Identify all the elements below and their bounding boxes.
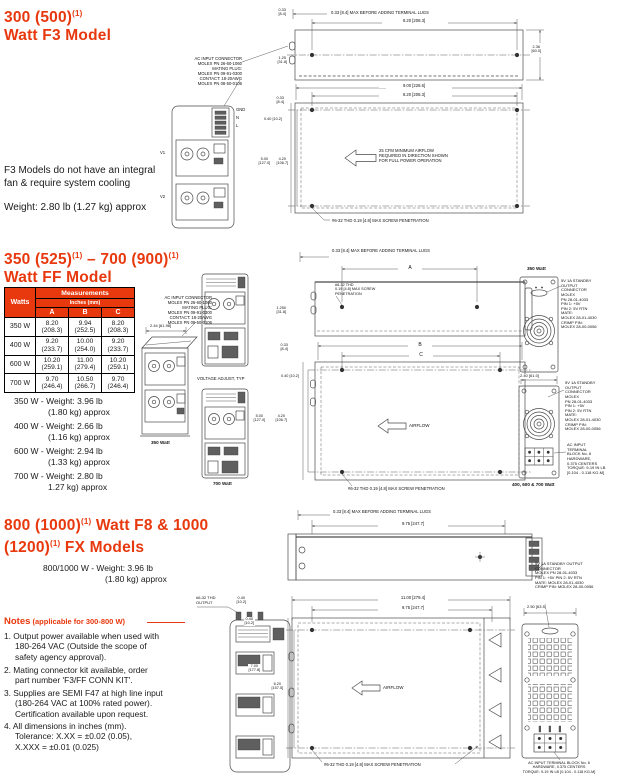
fx-dim-040a: 0.40 [10.2] [236,596,247,605]
ff-ac-connector-note: AC INPUT CONNECTOR MOLEX PN 26-60-1060 M… [140,295,212,325]
ff-fan1-label: 350 Watt [527,266,546,271]
ff-airflow-label: AIRFLOW [409,423,430,428]
col-header-c: C [102,308,135,318]
ff-dim-terminal-lugs: 0.33 [8.4] MAX BEFORE ADDING TERMINAL LU… [332,248,430,253]
col-header-units: Inches (mm) [36,299,135,308]
f3-output1-label: V1 [160,150,165,155]
ff-dim-040: 0.40 [10.2] [281,374,299,378]
fx-dim-1100: 11.00 [279.4] [378,595,448,600]
ff-fan-panel-400-700 [519,376,566,478]
cell-c: 9.70 (246.4) [102,374,135,393]
ff-standby-note-1: 5V 1A STANDBY OUTPUT CONNECTOR MOLEX PN … [561,279,623,330]
f3-dim-820-top: 8.20 [208.3] [384,18,444,23]
notes-rule [147,622,185,623]
table-row: 350 W 8.20 (208.3) 9.94 (252.5) 8.20 (20… [5,318,135,337]
cell-b: 10.00 (254.0) [69,336,102,355]
f3-dim-040: 0.40 [10.2] [264,117,282,121]
ff-title-line2: Watt FF Model [4,269,179,287]
ff-standby-note-2: 5V 1A STANDBY OUTPUT CONNECTOR MOLEX PN … [565,381,624,432]
fx-title-part3: (1200) [4,539,50,556]
ff-fan-panel-350 [520,277,561,372]
ff-dim-420: 4.20 [106.7] [275,414,288,423]
cell-c: 9.20 (233.7) [102,336,135,355]
ff-dim-b: B [410,342,430,348]
f3-ac-connector-note: AC INPUT CONNECTOR MOLEX PN 26-60-1060 M… [158,56,242,86]
note-item-3: 3. Supplies are SEMI F47 at high line in… [4,688,201,719]
note-item-4: 4. All dimensions in inches (mm). Tolera… [4,721,201,752]
f3-dim-900: 9.00 [228.6] [379,83,449,88]
fx-title-line1: 800 (1000)(1) Watt F8 & 1000 [4,513,208,535]
fx-screw-note: #6-32 THD 0.19 [4.8] MAX SCREW PENETRATI… [324,762,421,767]
fx-title-part1: 800 (1000) [4,517,81,534]
f3-weight: Weight: 2.80 lb (1.27 kg) approx [4,201,146,214]
f3-dim-236: 2.36 [60.0] [531,45,542,54]
col-header-a: A [36,308,69,318]
weight-600w: 600 W - Weight: 2.94 lb (1.33 kg) approx [14,446,110,468]
f3-title-line2: Watt F3 Model [4,27,111,45]
cell-b: 10.50 (266.7) [69,374,102,393]
ff-dim-1250: 1.250 [31.8] [276,306,287,315]
ff-350w-label: 350 Watt [151,440,170,445]
ff-dim-c: C [411,352,431,358]
measurements-table: Watts Measurements Inches (mm) A B C 350… [4,287,135,393]
fx-title-part4: FX Models [60,539,144,556]
row-watts: 400 W [5,336,36,355]
ff-title-line1: 350 (525)(1) – 700 (900)(1) [4,247,179,269]
row-watts: 700 W [5,374,36,393]
notes-heading: Notes (applicable for 300-800 W) [4,616,125,627]
ff-mid-front-view-2 [202,389,248,478]
ff-ac-input-terminal-note: AC INPUT TERMINAL BLOCK No. 6 HARDWARE, … [567,443,624,475]
row-watts: 350 W [5,318,36,337]
cell-b: 9.94 (252.5) [69,318,102,337]
ff-fan2-label: 400, 600 & 700 Watt [512,482,554,487]
fx-airflow-label: AIRFLOW [383,685,404,690]
fx-dim-975-bottom: 9.75 [247.7] [378,605,448,610]
col-header-b: B [69,308,102,318]
ff-350-front-view [140,322,197,436]
ff-dim-500: 5.00 [127.0] [253,414,266,423]
fx-dim-975-top: 9.75 [247.7] [378,521,448,526]
fx-weight: 800/1000 W - Weight: 3.96 lb (1.80 kg) a… [43,563,167,585]
fx-dim-250: 2.50 [63.5] [527,605,546,610]
datasheet-page: 300 (500)(1) Watt F3 Model AC INPUT CONN… [0,0,624,781]
cell-a: 10.20 (259.1) [36,355,69,374]
f3-dim-125: 1.25 [31.8] [277,56,288,65]
f3-dim-500: 5.00 [127.0] [258,157,271,166]
weight-400w: 400 W - Weight: 2.66 lb (1.16 kg) approx [14,421,110,443]
note-item-1: 1. Output power available when used with… [4,631,201,662]
weight-350w: 350 W - Weight: 3.96 lb (1.80 kg) approx [14,396,110,418]
ff-title-part1: 350 (525) [4,251,72,268]
f3-title-footnote: (1) [72,9,82,18]
ff-bottom-view [303,342,532,486]
row-watts: 600 W [5,355,36,374]
ff-700w-label: 700 Watt [213,481,232,486]
cell-c: 8.20 (208.3) [102,318,135,337]
f3-dim-820-bottom: 8.20 [208.3] [379,92,449,97]
f3-title-line1: 300 (500)(1) [4,5,111,27]
cell-a: 8.20 (208.3) [36,318,69,337]
ff-title-footnote2: (1) [169,251,179,260]
fx-dim-terminal-lugs: 0.33 [8.4] MAX BEFORE ADDING TERMINAL LU… [333,509,431,514]
f3-dim-420: 4.20 [106.7] [276,157,289,166]
f3-dim-terminal-lugs: 0.33 [8.4] MAX BEFORE ADDING TERMINAL LU… [331,10,429,15]
fx-title-footnote2: (1) [50,539,60,548]
col-header-measurements: Measurements [36,288,135,299]
fx-output-label: #6-32 THD OUTPUT [196,596,230,605]
fx-perforated-panel [522,604,578,760]
notes-title: Notes [4,616,30,627]
ff-section-title: 350 (525)(1) – 700 (900)(1) Watt FF Mode… [4,247,179,287]
f3-cooling-note: F3 Models do not have an integral fan & … [4,164,155,190]
f3-airflow-note: 25 CFM MINIMUM AIRFLOW REQUIRED IN DIREC… [379,148,448,163]
note-item-2: 2. Mating connector kit available, order… [4,665,201,686]
fx-title-part2: Watt F8 & 1000 [91,517,208,534]
f3-section-title: 300 (500)(1) Watt F3 Model [4,5,111,45]
ff-screw-note: #6-32 THD 0.19 [4.8] MAX SCREW PENETRATI… [348,486,445,491]
fx-standby-note: 5V 1A STANDBY OUTPUT CONNECTOR MOLEX PN … [535,562,624,590]
fx-dim-620: 6.20 [157.5] [271,682,284,691]
cell-b: 11.00 (279.4) [69,355,102,374]
f3-screw-note: #6-32 THD 0.19 [4.8] MAX SCREW PENETRATI… [332,218,429,223]
fx-dim-040b: 0.40 [10.2] [244,617,255,626]
ff-title-footnote1: (1) [72,251,82,260]
ff-dim-244: 2.44 [61.98] [150,324,171,329]
ff-screw-callout: #6-32 THD 0.19 [4.8] MAX SCREW PENETRATI… [335,283,375,296]
fx-section-title: 800 (1000)(1) Watt F8 & 1000 (1200)(1) F… [4,513,208,557]
ff-title-part2: – 700 (900) [83,251,169,268]
col-header-watts: Watts [5,288,36,318]
fx-ac-input-terminal-note: AC INPUT TERMINAL BLOCK No. 6 HARDWARE, … [494,761,624,774]
cell-a: 9.20 (233.7) [36,336,69,355]
fx-dim-700: 7.00 [177.8] [248,664,261,673]
ff-voltage-adjust-label: VOLTAGE ADJUST, TYP [197,376,245,381]
weight-700w: 700 W - Weight: 2.80 lb 1.27 kg) approx [14,471,107,493]
f3-output2-label: V2 [160,194,165,199]
f3-dim-033-bottom: 0.33 [8.4] [276,96,284,105]
cell-c: 10.20 (259.1) [102,355,135,374]
cell-a: 9.70 (246.4) [36,374,69,393]
table-row: 600 W 10.20 (259.1) 11.00 (279.4) 10.20 … [5,355,135,374]
f3-dim-033-top: 0.33 [8.4] [278,8,286,17]
f3-pin-labels: GND N L [236,106,245,130]
notes-scope: (applicable for 300-800 W) [30,617,125,626]
fx-bottom-view [286,596,515,764]
table-row: 700 W 9.70 (246.4) 10.50 (266.7) 9.70 (2… [5,374,135,393]
table-row: 400 W 9.20 (233.7) 10.00 (254.0) 9.20 (2… [5,336,135,355]
f3-title-text: 300 (500) [4,9,72,26]
ff-dim-240: 2.40 [61.0] [520,374,539,379]
fx-title-footnote1: (1) [81,517,91,526]
ff-dim-033: 0.33 [8.4] [280,343,288,352]
fx-title-line2: (1200)(1) FX Models [4,535,208,557]
ff-dim-a: A [400,265,420,271]
